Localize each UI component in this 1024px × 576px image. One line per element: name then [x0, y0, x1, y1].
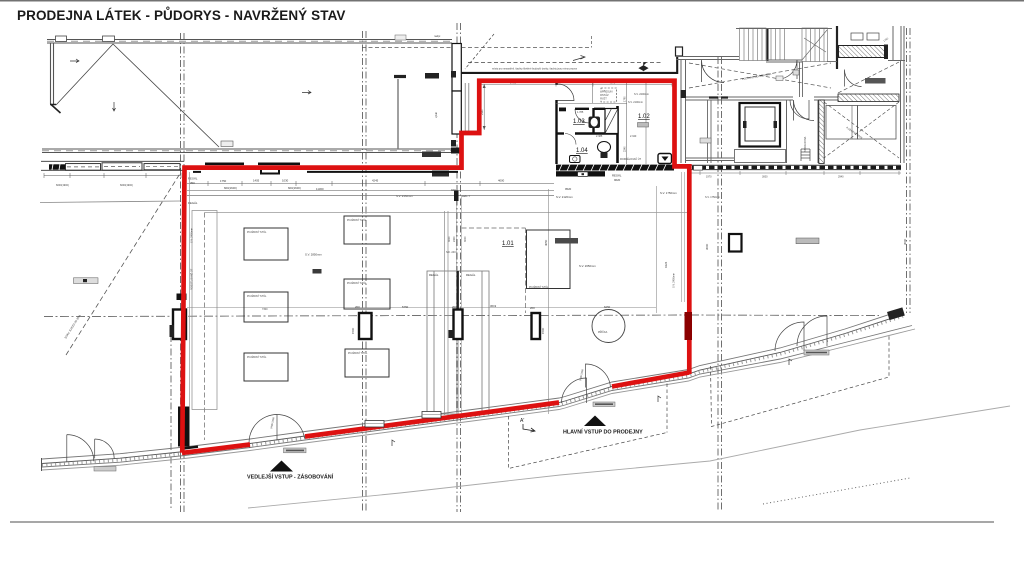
svg-text:ROZDĚLOVAČ ÚT: ROZDĚLOVAČ ÚT: [620, 158, 642, 161]
svg-text:A': A': [520, 418, 524, 424]
svg-text:POJÍZDNÝ STŮL: POJÍZDNÝ STŮL: [247, 356, 267, 359]
svg-text:11300: 11300: [316, 187, 324, 191]
svg-text:1.02: 1.02: [638, 114, 650, 120]
svg-text:9520: 9520: [565, 187, 572, 191]
svg-text:S.V. 2100mm: S.V. 2100mm: [628, 101, 643, 104]
svg-text:S.V. 2350mm: S.V. 2350mm: [396, 194, 413, 198]
svg-text:S.K. 240: S.K. 240: [446, 251, 456, 254]
svg-text:2340: 2340: [624, 146, 627, 152]
svg-text:POJÍZDNÝ STŮL: POJÍZDNÝ STŮL: [247, 231, 267, 234]
svg-text:1750: 1750: [220, 179, 227, 183]
svg-text:1500: 1500: [541, 327, 545, 334]
svg-text:1500: 1500: [351, 327, 355, 334]
svg-text:REGÁL: REGÁL: [429, 273, 439, 277]
svg-text:S.V. 1750mm: S.V. 1750mm: [660, 191, 677, 195]
svg-text:600(1600): 600(1600): [224, 186, 237, 190]
svg-text:6324: 6324: [664, 261, 668, 268]
svg-text:VEDLEJŠÍ VSTUP - ZÁSOBOVÁNÍ: VEDLEJŠÍ VSTUP - ZÁSOBOVÁNÍ: [247, 473, 334, 481]
svg-text:HØL.T: HØL.T: [462, 194, 471, 198]
svg-text:S.V. 2400mm: S.V. 2400mm: [673, 273, 676, 288]
svg-text:STROJOVNA: STROJOVNA: [804, 136, 807, 152]
svg-text:PŘÍČKA: PŘÍČKA: [598, 331, 608, 334]
svg-text:1.04: 1.04: [576, 148, 588, 154]
svg-text:výtah: výtah: [435, 111, 438, 118]
svg-text:1.03: 1.03: [573, 119, 585, 125]
svg-text:2400: 2400: [453, 236, 456, 242]
svg-text:1970: 1970: [706, 176, 712, 179]
svg-text:POJÍZDNÝ STŮL: POJÍZDNÝ STŮL: [347, 219, 367, 222]
svg-text:9620: 9620: [614, 178, 621, 182]
svg-text:3000: 3000: [705, 243, 709, 250]
svg-text:3000: 3000: [464, 236, 467, 242]
svg-text:3619: 3619: [490, 304, 497, 308]
svg-text:S.V. 2400mm: S.V. 2400mm: [191, 228, 194, 243]
svg-text:ROZDĚLOVNĚ ÚT: ROZDĚLOVNĚ ÚT: [191, 268, 194, 290]
svg-text:POJÍZDNÝ STŮL: POJÍZDNÝ STŮL: [529, 286, 549, 289]
svg-text:6000(1900): 6000(1900): [120, 184, 133, 187]
svg-text:VZT: VZT: [602, 98, 607, 101]
svg-text:6250: 6250: [604, 305, 611, 309]
svg-text:2.340: 2.340: [630, 135, 637, 138]
svg-text:POJÍZDNÝ STŮL: POJÍZDNÝ STŮL: [347, 282, 367, 285]
svg-text:místo pro nezastřeš. šachty šk: místo pro nezastřeš. šachty škrtěné budo…: [492, 68, 578, 71]
svg-text:1.785: 1.785: [577, 111, 584, 114]
svg-text:4050: 4050: [544, 239, 548, 246]
svg-text:1790: 1790: [624, 96, 627, 102]
svg-text:REGÁL: REGÁL: [612, 174, 622, 178]
svg-text:S.V. 2200mm: S.V. 2200mm: [634, 93, 649, 96]
svg-text:5750: 5750: [402, 305, 409, 309]
svg-text:1.01: 1.01: [502, 241, 514, 247]
svg-text:4000: 4000: [498, 179, 505, 183]
svg-text:3000: 3000: [448, 236, 451, 242]
svg-text:200: 200: [355, 305, 360, 309]
svg-text:3000: 3000: [903, 238, 907, 245]
svg-text:350: 350: [190, 181, 195, 185]
svg-text:200: 200: [452, 305, 457, 309]
svg-text:POJÍZDNÝ STŮL: POJÍZDNÝ STŮL: [247, 295, 267, 298]
svg-text:7300: 7300: [262, 308, 268, 311]
svg-text:200: 200: [530, 306, 535, 310]
svg-text:2940: 2940: [838, 176, 844, 179]
svg-text:S.V. 1750mm: S.V. 1750mm: [705, 196, 720, 199]
svg-text:S.V. 2850mm: S.V. 2850mm: [305, 253, 322, 257]
svg-text:1030: 1030: [282, 179, 289, 183]
svg-text:3000: 3000: [762, 176, 768, 179]
svg-text:REGÁL: REGÁL: [466, 273, 476, 277]
svg-text:1405: 1405: [253, 179, 260, 183]
svg-text:HLAVNÍ VSTUP DO PRODEJNY: HLAVNÍ VSTUP DO PRODEJNY: [563, 428, 643, 436]
svg-text:2.385: 2.385: [596, 135, 603, 138]
svg-text:4245: 4245: [372, 179, 379, 183]
svg-text:600(1600): 600(1600): [288, 186, 301, 190]
svg-text:S.V. 2650mm: S.V. 2650mm: [579, 264, 596, 268]
svg-text:6000(1900): 6000(1900): [56, 184, 69, 187]
svg-text:nadpr.: nadpr.: [434, 35, 441, 38]
svg-text:S.V. 2120mm: S.V. 2120mm: [556, 195, 573, 199]
svg-text:POJÍZDNÝ STŮL: POJÍZDNÝ STŮL: [348, 352, 368, 355]
svg-text:PRODEJNA LÁTEK - PŮDORYS - NAV: PRODEJNA LÁTEK - PŮDORYS - NAVRŽENÝ STAV: [17, 7, 346, 23]
